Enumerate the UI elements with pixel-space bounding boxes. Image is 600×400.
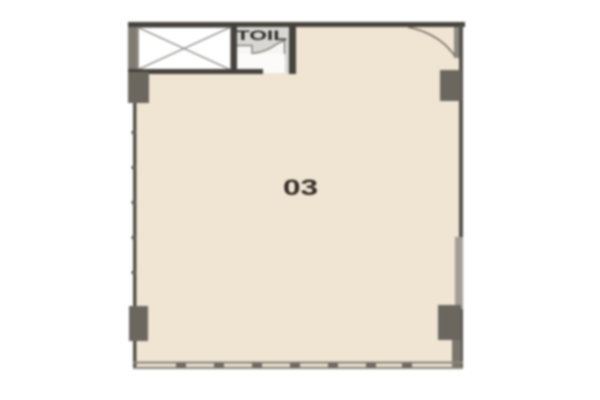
svg-text:TOIL: TOIL	[236, 27, 288, 43]
svg-text:03: 03	[283, 175, 318, 200]
